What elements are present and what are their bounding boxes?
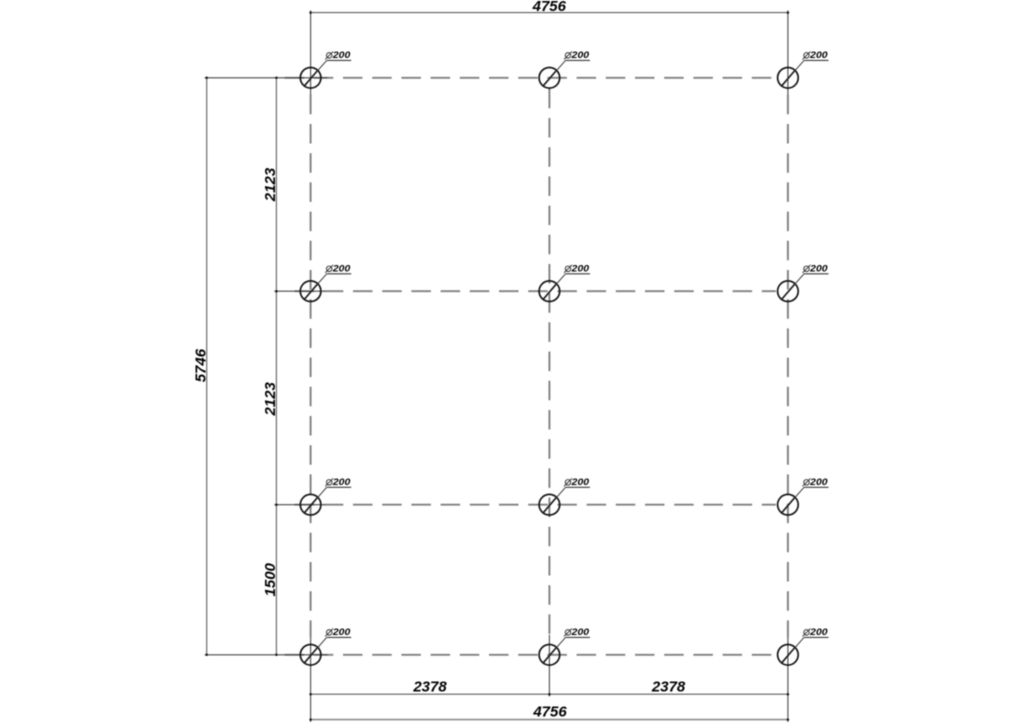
svg-text:4756: 4756 bbox=[532, 0, 567, 15]
svg-text:200: 200 bbox=[809, 477, 828, 487]
svg-text:1500: 1500 bbox=[262, 562, 279, 596]
svg-text:200: 200 bbox=[571, 50, 590, 60]
svg-text:200: 200 bbox=[571, 263, 590, 273]
svg-text:2123: 2123 bbox=[262, 381, 279, 416]
svg-text:200: 200 bbox=[332, 50, 351, 60]
svg-text:2123: 2123 bbox=[262, 167, 279, 202]
svg-text:4756: 4756 bbox=[532, 703, 567, 720]
svg-text:2378: 2378 bbox=[651, 678, 686, 695]
svg-text:200: 200 bbox=[809, 263, 828, 273]
svg-text:2378: 2378 bbox=[412, 678, 447, 695]
svg-text:5746: 5746 bbox=[192, 348, 209, 382]
svg-text:200: 200 bbox=[809, 627, 828, 637]
svg-text:200: 200 bbox=[332, 627, 351, 637]
svg-text:200: 200 bbox=[332, 477, 351, 487]
svg-text:200: 200 bbox=[571, 627, 590, 637]
svg-text:200: 200 bbox=[571, 477, 590, 487]
svg-text:200: 200 bbox=[809, 50, 828, 60]
svg-text:200: 200 bbox=[332, 263, 351, 273]
